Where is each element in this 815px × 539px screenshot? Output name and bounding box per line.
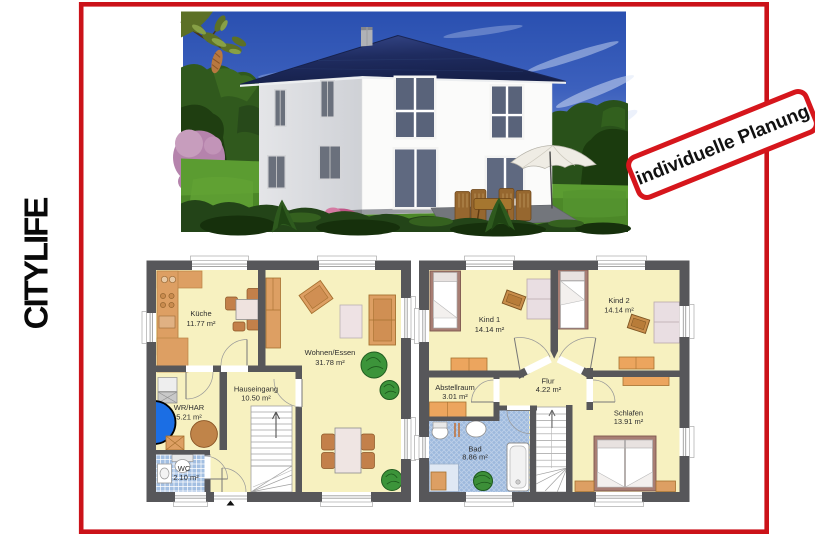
svg-text:14.14 m²: 14.14 m² — [475, 325, 505, 334]
svg-text:3.01 m²: 3.01 m² — [442, 392, 468, 401]
svg-text:8.86 m²: 8.86 m² — [462, 453, 488, 462]
svg-text:Kind 1: Kind 1 — [479, 315, 500, 324]
svg-text:WC: WC — [178, 464, 191, 473]
svg-text:5.21 m²: 5.21 m² — [176, 413, 202, 422]
svg-text:14.14 m²: 14.14 m² — [604, 306, 634, 315]
svg-text:Kind 2: Kind 2 — [608, 296, 629, 305]
svg-text:Hauseingang: Hauseingang — [234, 385, 278, 394]
svg-text:11.77 m²: 11.77 m² — [186, 319, 216, 328]
svg-text:Wohnen/Essen: Wohnen/Essen — [305, 348, 356, 357]
svg-text:CITYLIFE: CITYLIFE — [18, 198, 55, 330]
svg-text:Küche: Küche — [190, 309, 211, 318]
svg-text:13.91 m²: 13.91 m² — [614, 417, 644, 426]
svg-text:Abstellraum: Abstellraum — [435, 383, 475, 392]
svg-text:31.78 m²: 31.78 m² — [315, 358, 345, 367]
svg-text:10.50 m²: 10.50 m² — [241, 394, 271, 403]
svg-text:4.22 m²: 4.22 m² — [536, 385, 562, 394]
svg-text:2.10 m²: 2.10 m² — [173, 473, 199, 482]
svg-text:WR/HAR: WR/HAR — [174, 403, 205, 412]
